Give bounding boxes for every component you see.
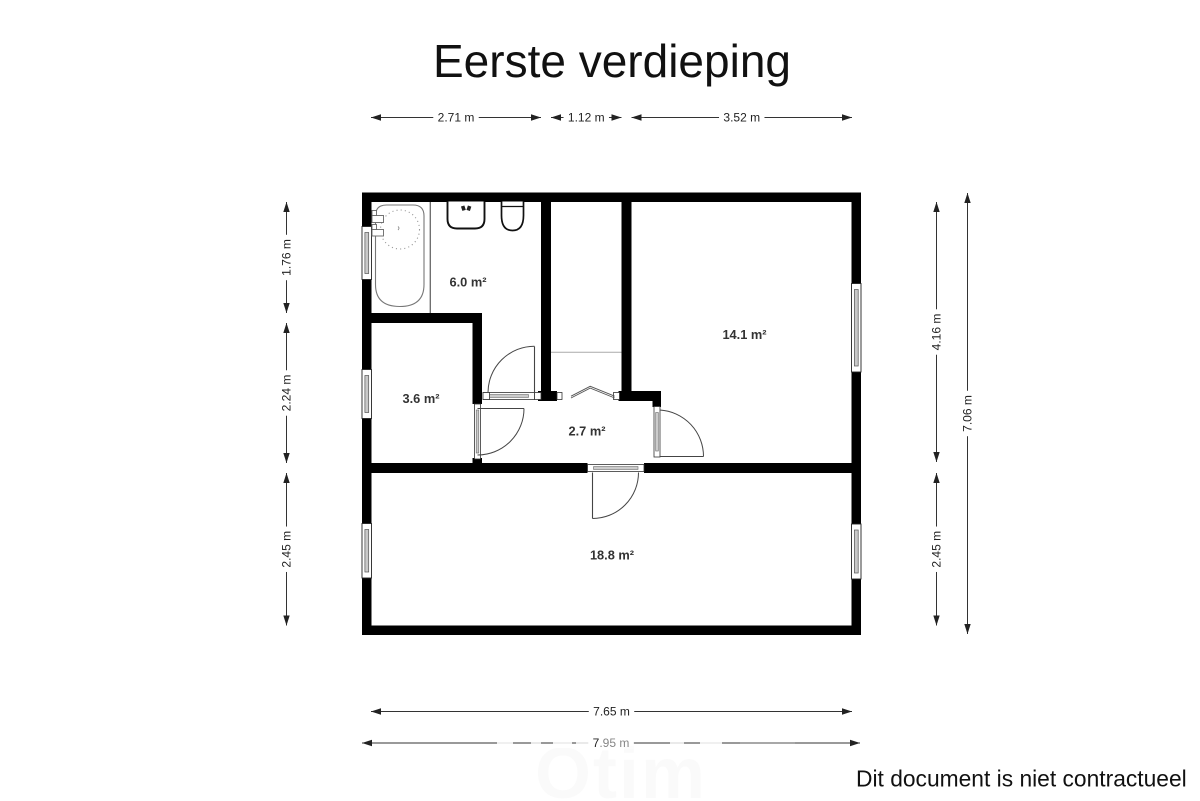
- svg-text:14.1 m²: 14.1 m²: [722, 327, 766, 342]
- svg-text:7.06 m: 7.06 m: [961, 395, 975, 432]
- svg-text:1.76 m: 1.76 m: [280, 239, 294, 276]
- svg-text:3.52 m: 3.52 m: [723, 111, 760, 125]
- svg-text:Eerste verdieping: Eerste verdieping: [433, 35, 791, 87]
- svg-text:3.6 m²: 3.6 m²: [403, 391, 440, 406]
- svg-text:2.71 m: 2.71 m: [438, 111, 475, 125]
- svg-text:6.0 m²: 6.0 m²: [450, 275, 487, 290]
- svg-text:4.16 m: 4.16 m: [930, 314, 944, 351]
- svg-text:1.12 m: 1.12 m: [568, 111, 605, 125]
- svg-text:Dit document is niet contractu: Dit document is niet contractueel: [856, 765, 1187, 791]
- svg-text:2.45 m: 2.45 m: [280, 531, 294, 568]
- svg-text:2.7 m²: 2.7 m²: [569, 424, 606, 439]
- svg-text:2.45 m: 2.45 m: [930, 531, 944, 568]
- svg-text:7.65 m: 7.65 m: [593, 705, 630, 719]
- svg-text:18.8 m²: 18.8 m²: [590, 548, 634, 563]
- svg-text:2.24 m: 2.24 m: [280, 375, 294, 412]
